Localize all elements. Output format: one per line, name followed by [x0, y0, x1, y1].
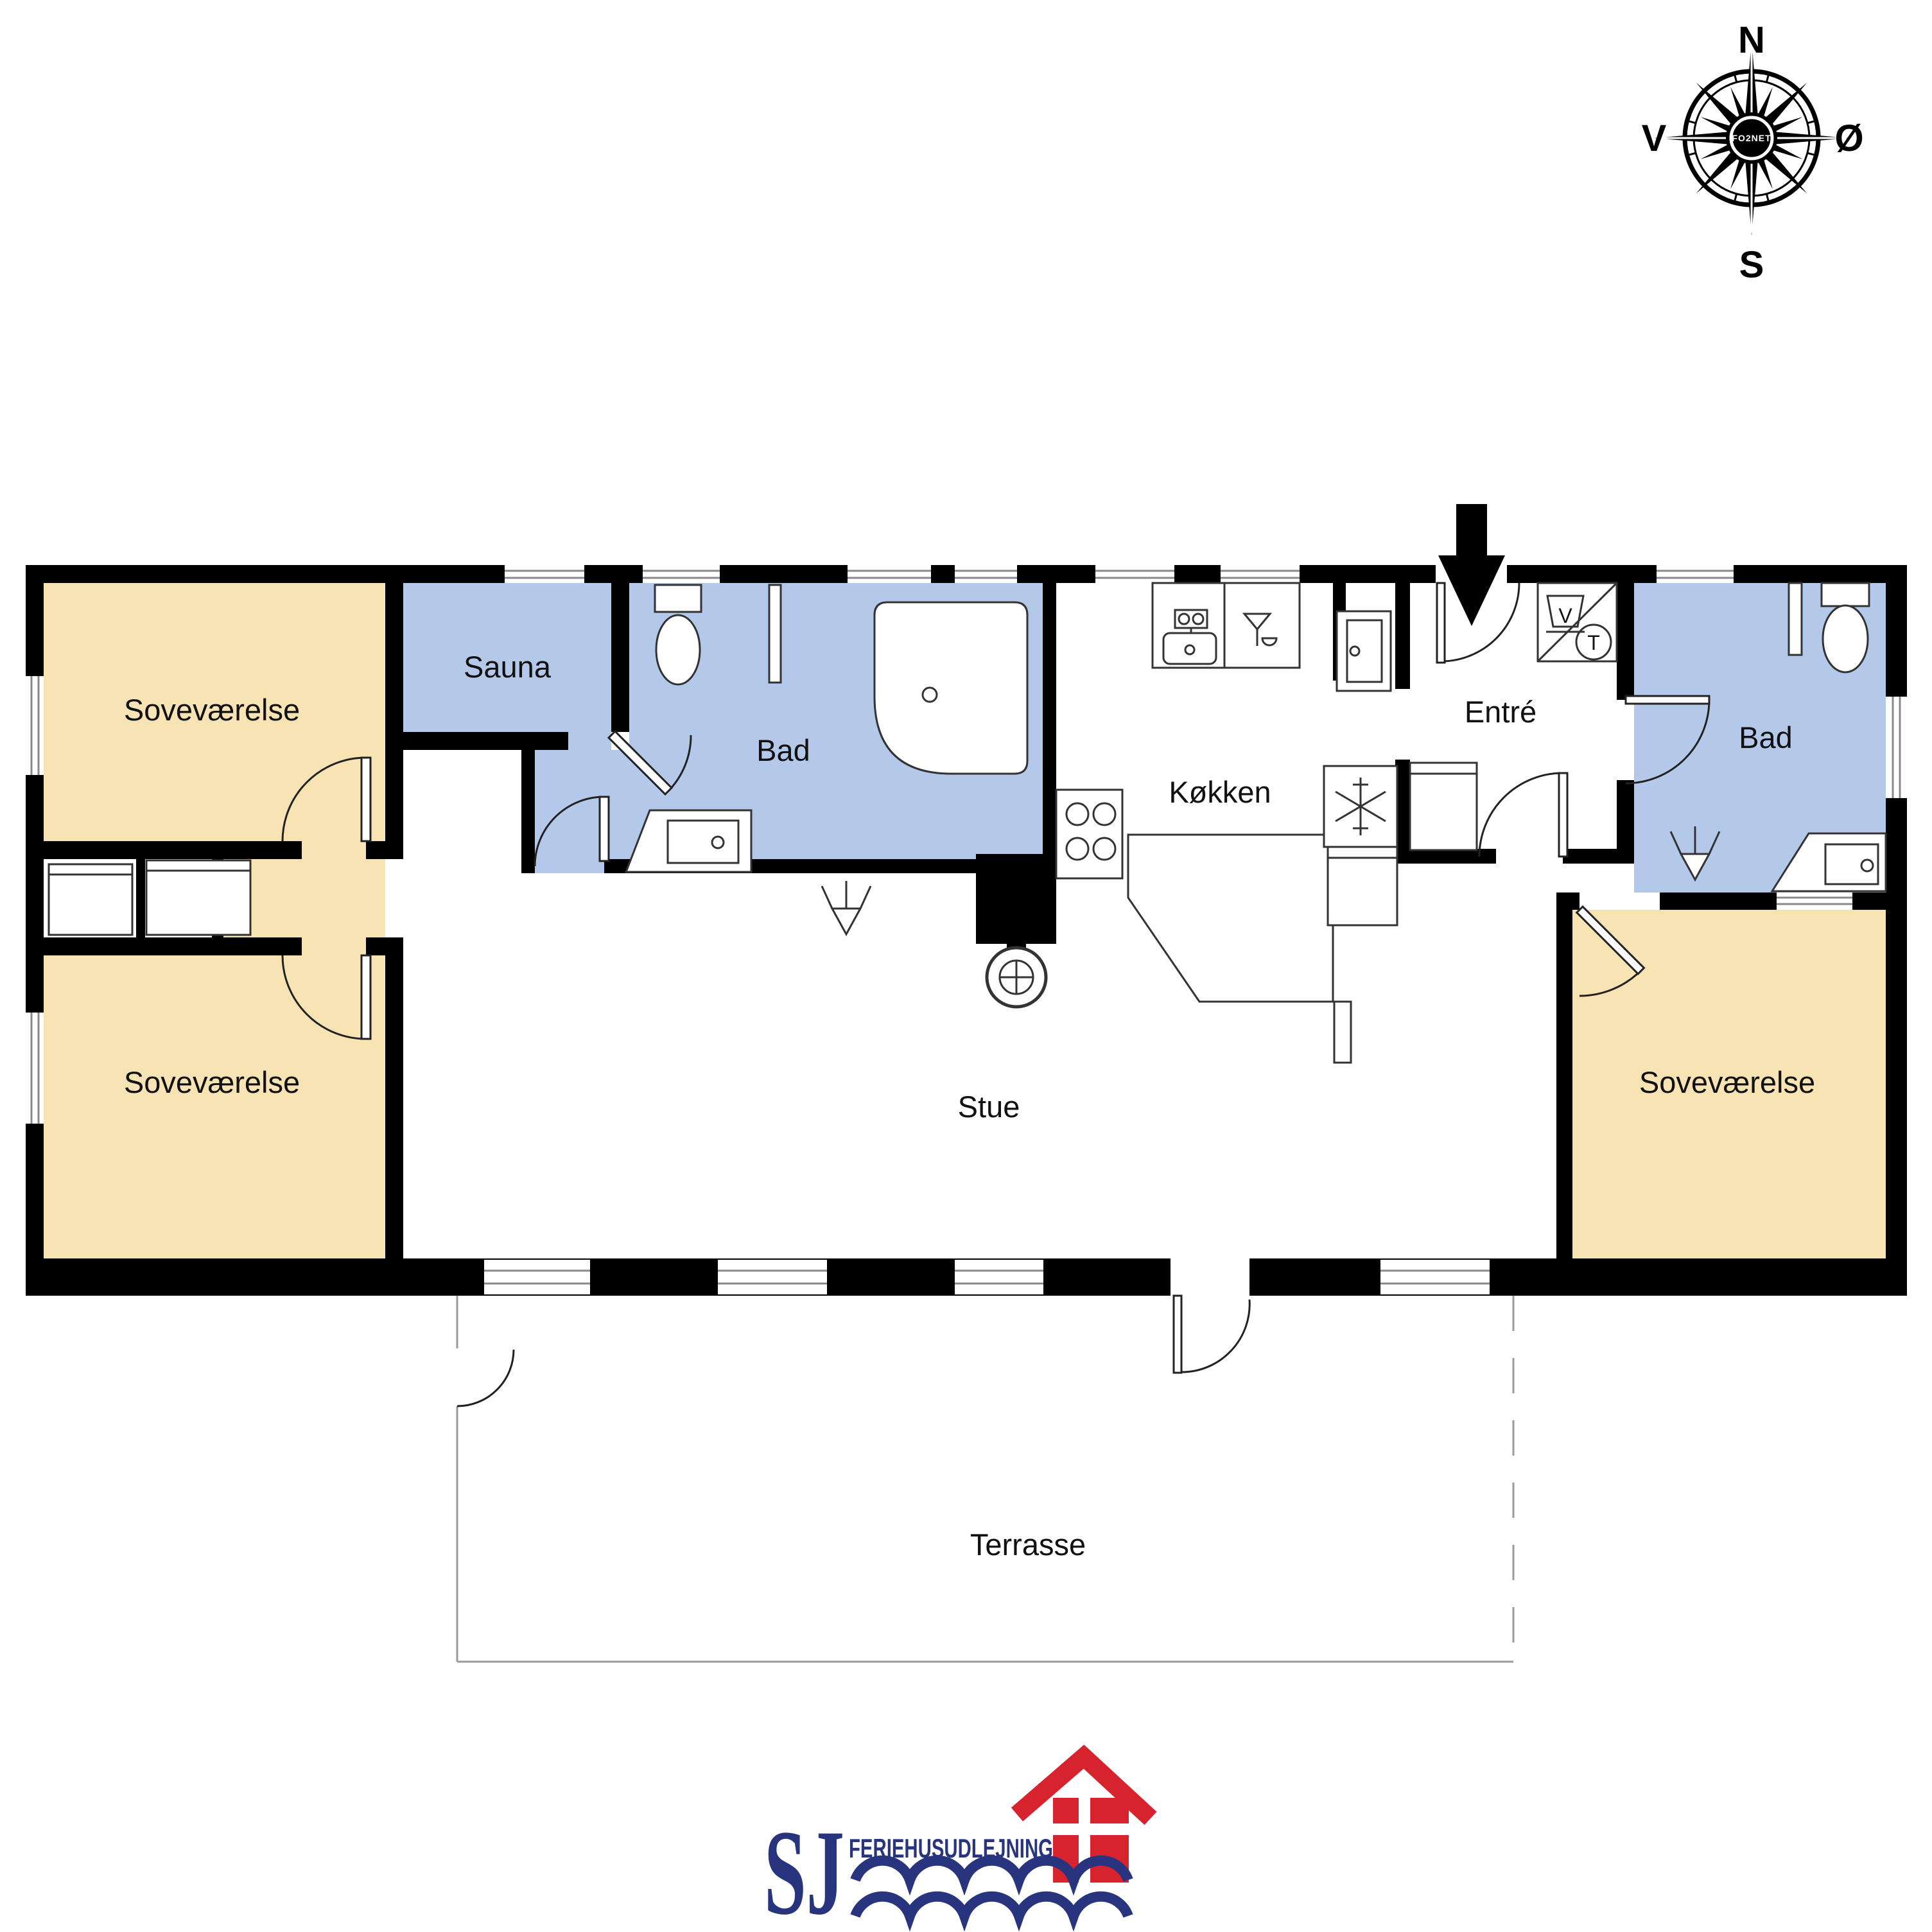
door-arc: [457, 1350, 514, 1406]
compass-rose: FO2NET: [1654, 40, 1849, 236]
window: [26, 676, 44, 775]
floorplan-canvas: V T: [0, 0, 1932, 1932]
washer-symbol: V: [1558, 604, 1572, 627]
shower-icon: [822, 881, 871, 934]
room-label-bedroom-sw: Soveværelse: [124, 1065, 300, 1099]
toilet-icon: [1822, 583, 1869, 672]
terrace-opening: [1171, 1258, 1249, 1296]
bath-partition: [1789, 583, 1802, 655]
compass-label-west: V: [1642, 117, 1667, 159]
window: [643, 565, 720, 583]
room-label-terrace: Terrasse: [970, 1527, 1086, 1562]
wall-right: [1886, 565, 1907, 1296]
window: [26, 1013, 44, 1124]
freezer-icon: [1324, 766, 1397, 847]
window: [484, 1260, 590, 1294]
room-label-bath-second: Bad: [1739, 720, 1793, 754]
entrance-arrow-icon: [1438, 504, 1505, 626]
room-label-living-room: Stue: [958, 1090, 1020, 1124]
door-arc: [1479, 773, 1567, 857]
hob-icon: [1056, 790, 1122, 878]
compass-label-north: N: [1738, 19, 1765, 61]
window: [1657, 565, 1734, 583]
kitchen-island: [1128, 835, 1351, 1063]
window: [1380, 1260, 1490, 1294]
stove-icon: [987, 939, 1046, 1007]
logo: SJ FERIEHUSUDLEJNING: [764, 1757, 1151, 1932]
wardrobe-icon: [49, 864, 132, 935]
terrace-outline: [457, 1296, 1513, 1662]
door-arc: [1174, 1296, 1249, 1373]
compass-label-south: S: [1739, 244, 1764, 286]
toilet-icon: [655, 585, 701, 684]
stove-nook: [976, 854, 1056, 944]
window: [1095, 565, 1174, 583]
room-label-bedroom-se: Soveværelse: [1639, 1065, 1815, 1099]
dryer-symbol: T: [1587, 631, 1600, 654]
compass-watermark: FO2NET: [1732, 133, 1771, 143]
room-label-sauna: Sauna: [464, 650, 552, 684]
room-label-entry: Entré: [1465, 695, 1536, 729]
room-bath-main-lobe: [535, 750, 629, 873]
laundry-unit: V T: [1538, 583, 1617, 661]
window: [1221, 565, 1300, 583]
room-label-bath-main: Bad: [756, 733, 810, 767]
bath-partition: [769, 585, 781, 683]
logo-monogram: SJ: [764, 1806, 844, 1932]
window: [848, 565, 931, 583]
window: [505, 565, 584, 583]
window: [955, 565, 1017, 583]
window: [1777, 892, 1852, 910]
window: [718, 1260, 827, 1294]
wall-left: [26, 565, 44, 1296]
room-label-kitchen: Køkken: [1169, 775, 1271, 809]
cabinet-icon: [1328, 847, 1397, 925]
room-bedroom-sw: [44, 955, 385, 1258]
bathtub-icon: [875, 602, 1027, 774]
logo-waves-icon: [855, 1861, 1128, 1916]
wardrobe-icon: [1410, 763, 1477, 850]
room-label-bedroom-nw: Soveværelse: [124, 693, 300, 727]
window: [1886, 697, 1907, 798]
wardrobe-icon: [146, 860, 250, 935]
cabinet-icon: [1337, 611, 1391, 691]
window: [955, 1260, 1043, 1294]
compass-label-east: Ø: [1834, 117, 1863, 159]
logo-wordmark: FERIEHUSUDLEJNING: [849, 1833, 1053, 1863]
